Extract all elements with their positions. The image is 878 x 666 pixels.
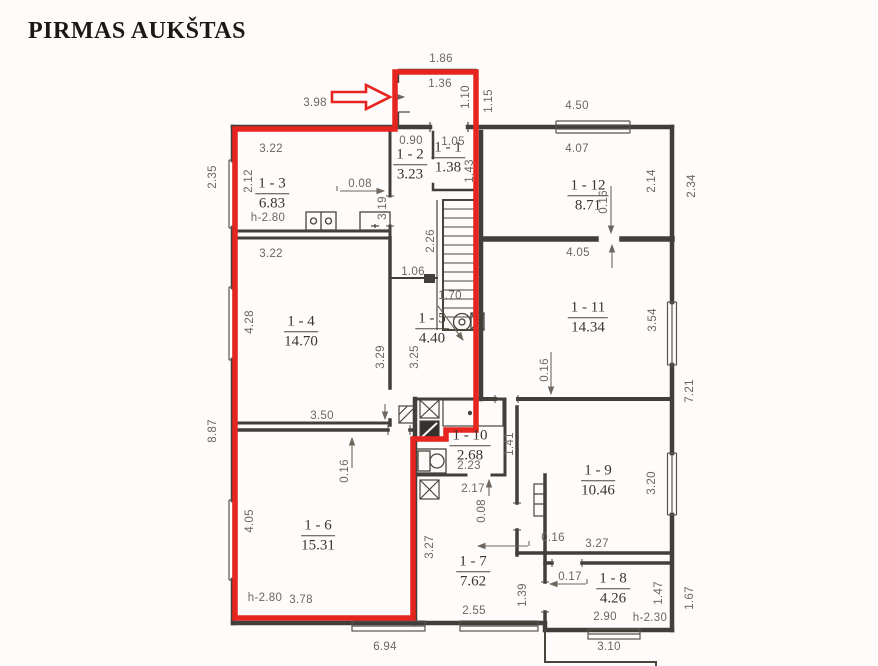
dim-r6-left: 4.05 <box>244 509 256 533</box>
dim-entry-width: 1.36 <box>428 78 452 90</box>
room-label-1-9: 1 - 9 10.46 <box>581 462 615 500</box>
room-label-1-7: 1 - 7 7.62 <box>456 553 490 591</box>
dim-r10-right: 1.41 <box>504 432 516 456</box>
dim-r11-wall: 0.16 <box>539 358 551 382</box>
room-id: 1 - 3 <box>255 175 289 194</box>
dim-r3-left: 2.12 <box>243 169 255 193</box>
dim-r2-bottom: 1.06 <box>401 266 425 278</box>
dim-entry-side: 1.15 <box>483 89 495 113</box>
dim-r7-left: 3.27 <box>424 535 436 559</box>
dim-r10-width: 2.23 <box>457 460 481 472</box>
room-area: 6.83 <box>259 195 285 213</box>
room-label-1-5: 1 - 5 4.40 <box>415 310 449 348</box>
dim-r8-wall: 0.17 <box>558 571 582 583</box>
room-id: 1 - 6 <box>301 517 335 536</box>
dim-r6-wall: 0.16 <box>339 459 351 483</box>
dim-entry-depth: 1.10 <box>460 85 472 109</box>
dim-r1-top: 1.05 <box>441 136 465 148</box>
kitchen-stove-icon <box>306 212 336 230</box>
room-label-1-6: 1 - 6 15.31 <box>301 517 335 555</box>
room-id: 1 - 9 <box>581 462 615 481</box>
dim-r9-wall: 0.16 <box>541 532 565 544</box>
room-id: 1 - 8 <box>596 570 630 589</box>
dim-r7-wall: 0.08 <box>476 499 488 523</box>
room-area: 4.26 <box>600 590 626 608</box>
room-area: 3.23 <box>397 166 423 184</box>
room-area: 14.34 <box>571 319 605 337</box>
dim-r2-top: 0.90 <box>399 135 423 147</box>
room-label-1-4: 1 - 4 14.70 <box>284 313 318 351</box>
dim-r8-outer-right: 1.67 <box>684 586 696 610</box>
dim-r4-right: 3.29 <box>375 345 387 369</box>
dim-stairs-run: 1.70 <box>438 290 462 302</box>
room-area: 7.62 <box>460 573 486 591</box>
dim-r9-bottom: 3.27 <box>585 538 609 550</box>
room-id: 1 - 7 <box>456 553 490 572</box>
dim-r12-top: 4.07 <box>565 143 589 155</box>
dim-r12-wall: 0.16 <box>598 190 610 214</box>
dim-r8-right: 1.47 <box>653 581 665 605</box>
room-id: 1 - 10 <box>450 427 491 446</box>
dim-r3-wall: 0.08 <box>348 178 372 190</box>
room-area: 14.70 <box>284 333 318 351</box>
dim-r2-left: 3.19 <box>377 196 389 220</box>
dim-r1-right: 1.43 <box>464 159 476 183</box>
dim-r12-outer-right: 2.34 <box>686 174 698 198</box>
room-label-1-8: 1 - 8 4.26 <box>596 570 630 608</box>
bath-sink-icon <box>416 449 446 473</box>
entrance-arrow-icon <box>332 85 390 109</box>
dim-r6-bottom: 3.78 <box>289 594 313 606</box>
dim-top-left-span: 3.98 <box>303 97 327 109</box>
dim-r7-bottom: 2.55 <box>462 605 486 617</box>
dim-r4-top: 3.22 <box>259 248 283 260</box>
dim-r6-height: h-2.80 <box>248 592 282 604</box>
dim-outer-left-bottom: 8.87 <box>207 419 219 443</box>
room-area: 10.46 <box>581 482 615 500</box>
dim-r2-mid: 2.26 <box>425 229 437 253</box>
dim-r7-top: 2.17 <box>461 483 485 495</box>
room-label-1-2: 1 - 2 3.23 <box>393 146 427 184</box>
dim-r11-top: 4.05 <box>566 247 590 259</box>
dim-r4-bottom: 3.50 <box>310 410 334 422</box>
dim-bottom-right-span: 3.10 <box>597 641 621 653</box>
dim-r12-right: 2.14 <box>646 169 658 193</box>
dim-r3-height: h-2.80 <box>251 212 285 224</box>
room-area: 15.31 <box>301 537 335 555</box>
dim-outer-left-top: 2.35 <box>207 165 219 189</box>
dim-bottom-left-span: 6.94 <box>373 641 397 653</box>
room-label-1-3: 1 - 3 6.83 <box>255 175 289 213</box>
dim-r7-door: 1.39 <box>517 583 529 607</box>
dim-outer-right-mid: 7.21 <box>684 379 696 403</box>
room-area: 1.38 <box>435 159 461 177</box>
dim-r8-height: h-2.30 <box>633 612 667 624</box>
dim-r11-right: 3.54 <box>647 308 659 332</box>
dim-r3-top: 3.22 <box>259 143 283 155</box>
dim-r8-bottom: 2.90 <box>593 611 617 623</box>
dim-r5-left: 3.25 <box>409 345 421 369</box>
room-area: 4.40 <box>419 330 445 348</box>
dim-top-right-span: 4.50 <box>565 100 589 112</box>
dim-entry-top: 1.86 <box>429 53 453 65</box>
dim-r9-right: 3.20 <box>646 471 658 495</box>
floor-plan-page: PIRMAS AUKŠTAS <box>0 0 878 666</box>
room-id: 1 - 5 <box>415 310 449 329</box>
room-id: 1 - 2 <box>393 146 427 165</box>
room-id: 1 - 11 <box>568 299 608 318</box>
room-label-1-11: 1 - 11 14.34 <box>568 299 608 337</box>
dim-r4-left: 4.28 <box>244 310 256 334</box>
room-id: 1 - 4 <box>284 313 318 332</box>
